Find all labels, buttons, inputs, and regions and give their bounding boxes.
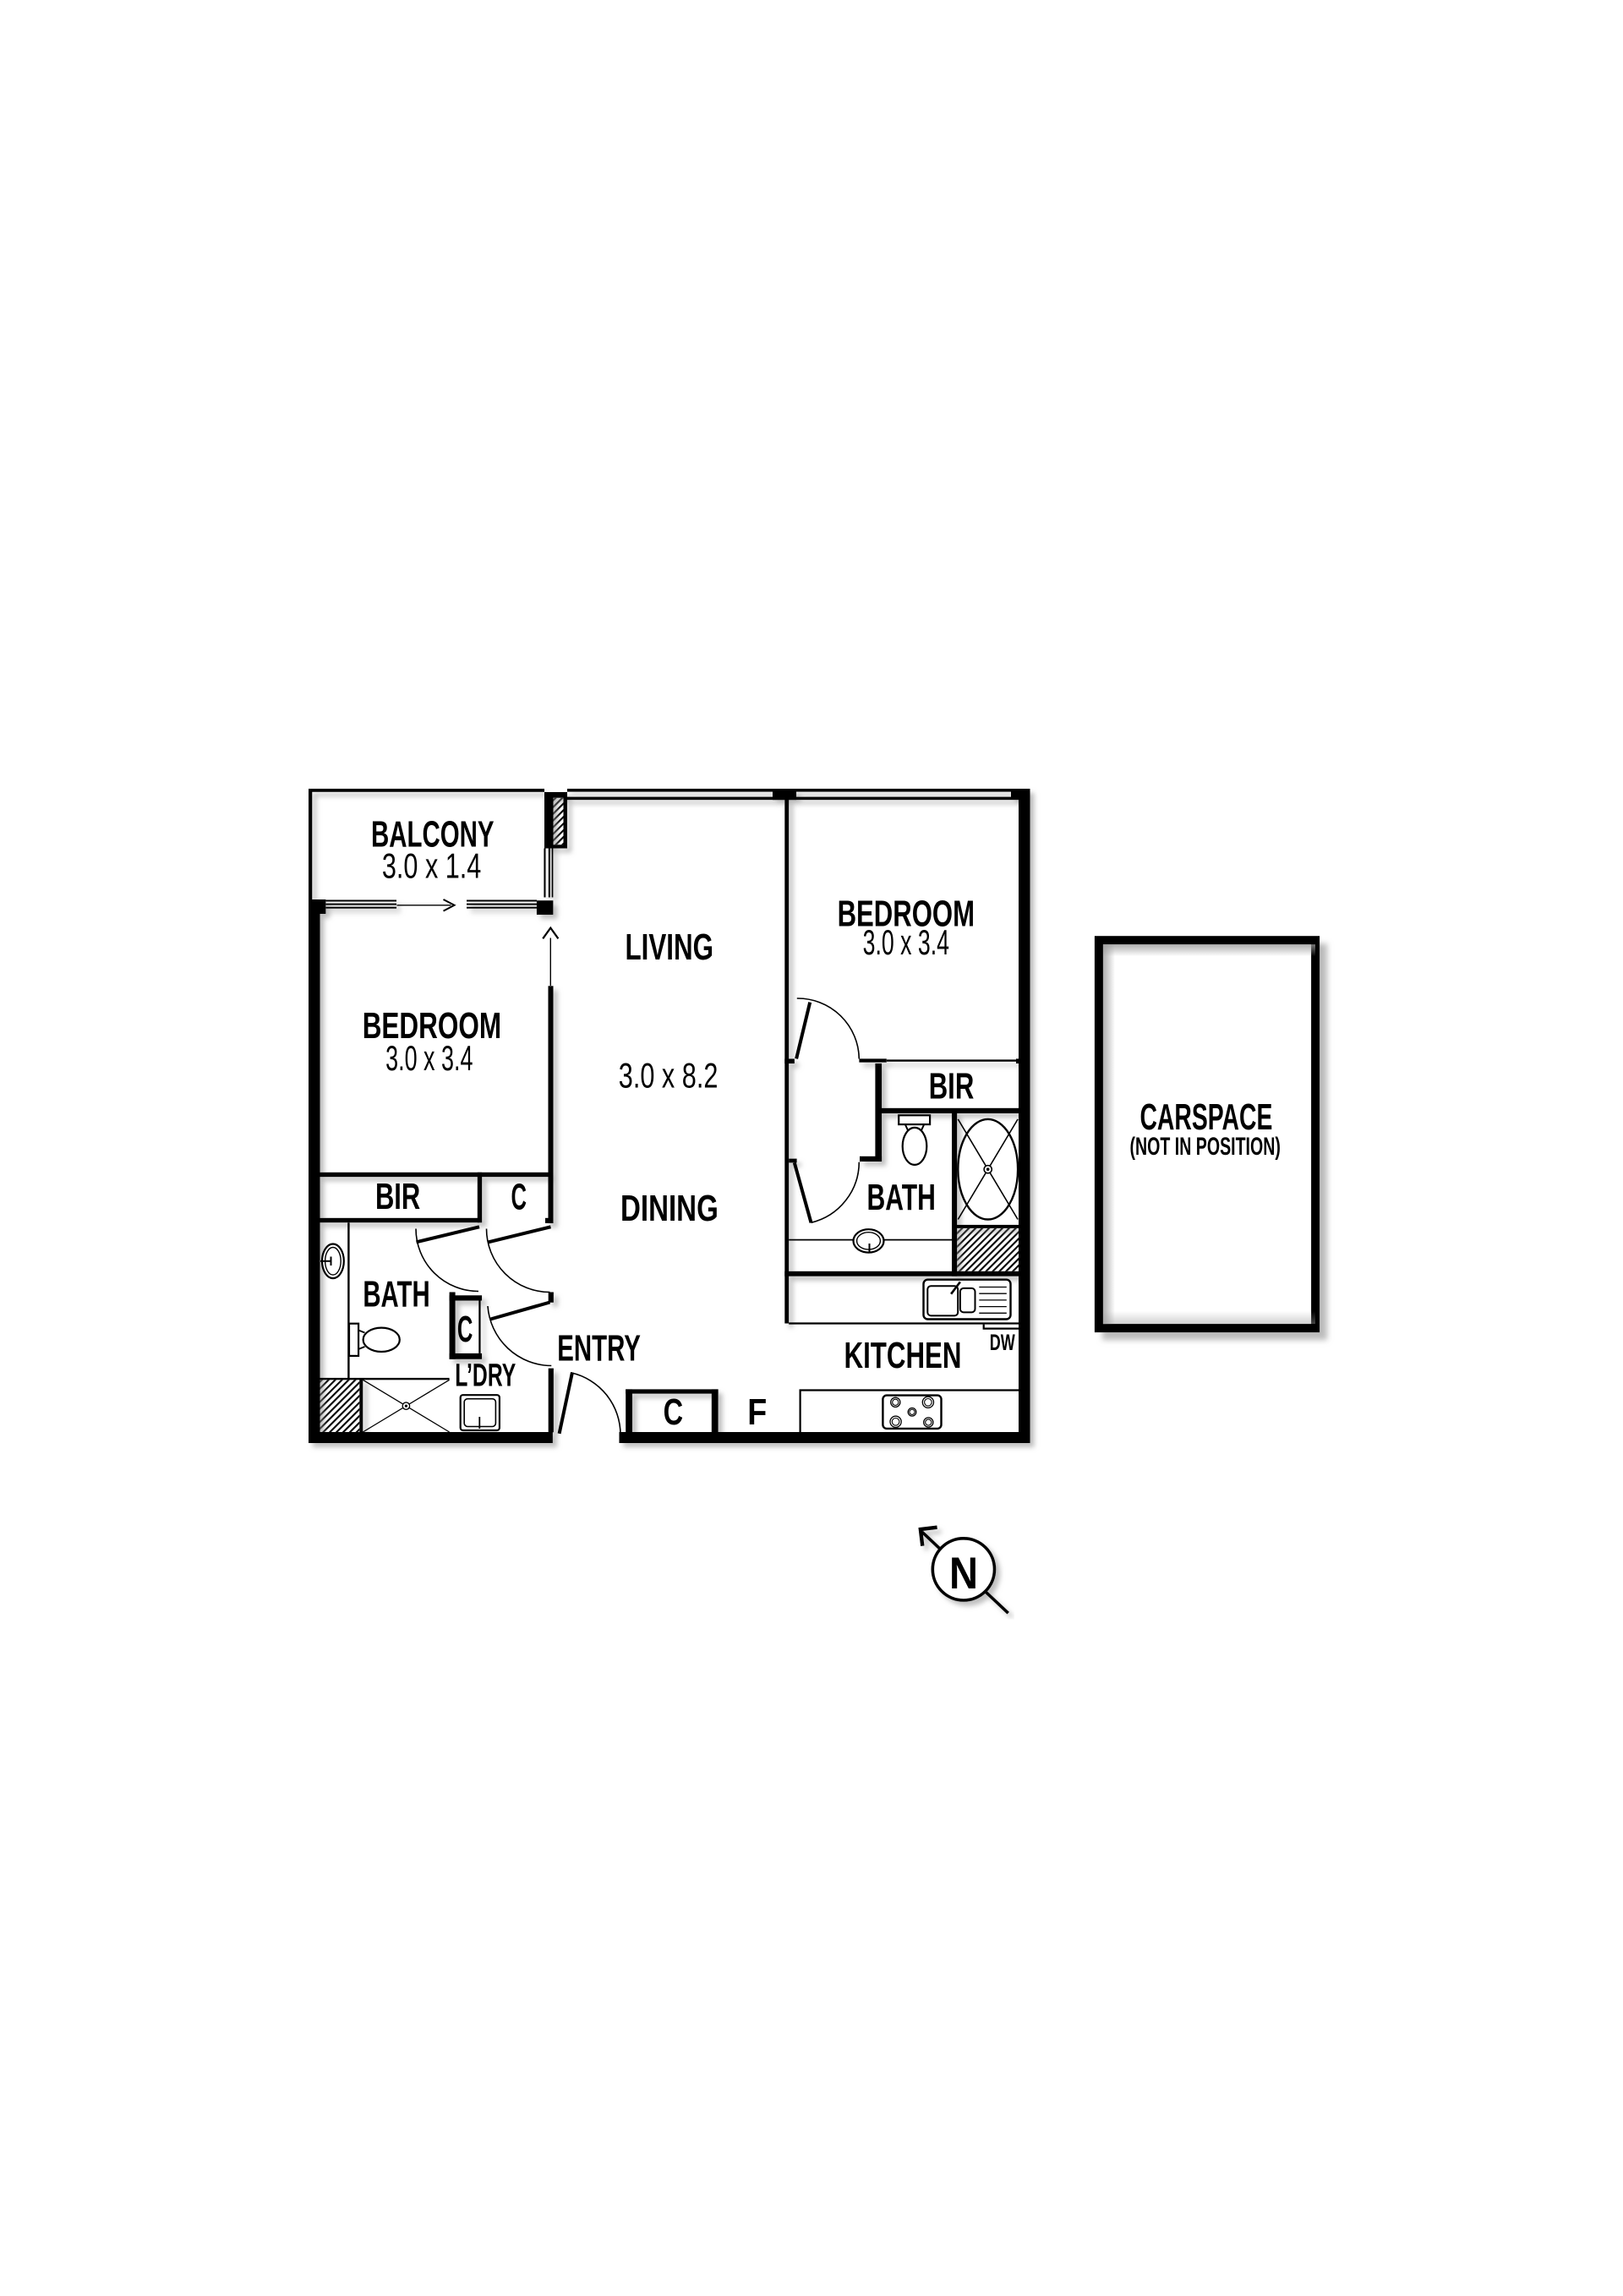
- svg-text:BATH: BATH: [363, 1273, 429, 1315]
- svg-text:L’DRY: L’DRY: [455, 1358, 516, 1393]
- svg-text:(NOT IN POSITION): (NOT IN POSITION): [1130, 1133, 1281, 1161]
- svg-text:3.0 x 3.4: 3.0 x 3.4: [863, 922, 949, 962]
- svg-text:KITCHEN: KITCHEN: [844, 1335, 962, 1376]
- svg-text:LIVING: LIVING: [626, 927, 714, 968]
- svg-text:BIR: BIR: [375, 1176, 420, 1217]
- svg-text:ENTRY: ENTRY: [557, 1328, 641, 1369]
- svg-text:3.0 x 8.2: 3.0 x 8.2: [619, 1056, 719, 1096]
- svg-text:3.0 x 1.4: 3.0 x 1.4: [382, 846, 482, 886]
- svg-text:N: N: [949, 1549, 978, 1599]
- svg-text:DINING: DINING: [620, 1188, 719, 1229]
- svg-text:3.0 x 3.4: 3.0 x 3.4: [385, 1038, 473, 1078]
- svg-text:C: C: [511, 1177, 527, 1218]
- svg-text:F: F: [747, 1391, 767, 1433]
- svg-text:C: C: [664, 1391, 684, 1433]
- svg-text:C: C: [457, 1309, 473, 1350]
- svg-text:CARSPACE: CARSPACE: [1139, 1096, 1272, 1138]
- svg-text:DW: DW: [990, 1330, 1015, 1355]
- svg-text:BATH: BATH: [867, 1177, 936, 1218]
- svg-text:BIR: BIR: [929, 1065, 975, 1107]
